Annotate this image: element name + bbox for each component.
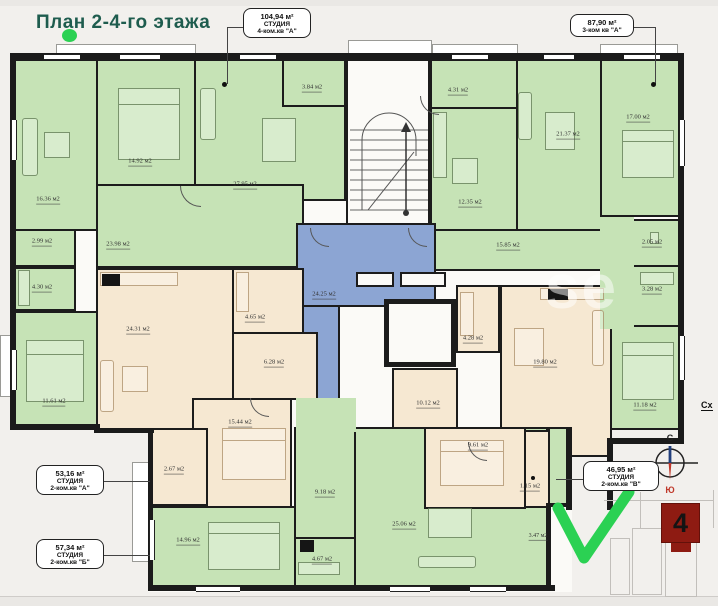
leader-dot — [651, 82, 656, 87]
corridor-filler — [296, 398, 356, 432]
compass-north-label: С — [667, 433, 674, 443]
top-strip — [0, 0, 718, 6]
callout-type: СТУДИЯ — [41, 478, 99, 485]
window — [679, 336, 685, 380]
room-4-31 — [430, 59, 520, 109]
window — [240, 54, 276, 60]
window — [470, 586, 506, 592]
room-area-label: 4.65 м2 — [245, 314, 265, 323]
bathtub-icon — [460, 292, 474, 336]
room-area-label: 27.95 м2 — [233, 181, 257, 190]
sofa-icon — [418, 556, 476, 568]
room-area-label: 4.67 м2 — [312, 556, 332, 565]
callout-area: 57,34 м² — [41, 543, 99, 552]
wall — [10, 424, 100, 430]
callout-unit: 2-ком.кв "Б" — [41, 559, 99, 566]
room-area-label: 25.06 м2 — [392, 521, 416, 530]
floorplan-screenshot: План 2-4-го этажа — [0, 0, 718, 606]
room-area-label: 24.31 м2 — [126, 326, 150, 335]
leader-line — [227, 27, 228, 84]
building-number: 4 — [673, 510, 688, 537]
sofa-icon — [22, 118, 38, 176]
room-area-label: 4.28 м2 — [463, 335, 483, 344]
room-area-label: 4.30 м2 — [32, 284, 52, 293]
bathtub-icon — [18, 270, 30, 306]
room-area-label: 21.37 м2 — [556, 131, 580, 140]
table-icon — [452, 158, 478, 184]
window — [120, 54, 160, 60]
sitemap-line — [713, 490, 714, 528]
room-area-label: 2.05 м2 — [642, 239, 662, 248]
sitemap-line — [640, 492, 641, 528]
room-area-label: 14.96 м2 — [176, 537, 200, 546]
bathtub-icon — [640, 272, 674, 285]
window — [44, 54, 80, 60]
room-area-label: 15.44 м2 — [228, 419, 252, 428]
room-area-label: 19.80 м2 — [533, 359, 557, 368]
room-area-label: 1.15 м2 — [520, 483, 540, 492]
callout-type: СТУДИЯ — [588, 474, 654, 481]
room-area-label: 17.00 м2 — [626, 114, 650, 123]
utility-shaft — [356, 272, 394, 287]
wall — [10, 53, 684, 59]
leader-dot — [222, 82, 227, 87]
window — [11, 350, 17, 390]
kitchen-counter-icon — [433, 112, 447, 178]
window — [679, 120, 685, 166]
callout-area: 53,16 м² — [41, 469, 99, 478]
leader-line — [104, 481, 150, 482]
wall — [678, 53, 684, 444]
utility-shaft — [400, 272, 446, 287]
sofa-icon — [518, 92, 532, 140]
dining-table-icon — [428, 508, 472, 538]
window — [544, 54, 574, 60]
window — [196, 586, 240, 592]
leader-line — [633, 27, 656, 28]
table-icon — [122, 366, 148, 392]
room-area-label: 12.35 м2 — [458, 199, 482, 208]
room-area-label: 23.98 м2 — [106, 241, 130, 250]
room-area-label: 24.25 м2 — [312, 291, 336, 300]
leader-line — [104, 555, 150, 556]
room-area-label: 6.28 м2 — [264, 359, 284, 368]
callout-studio-46: 46,95 м² СТУДИЯ 2-ком.кв "В" — [583, 461, 659, 491]
checkmark-icon — [545, 478, 640, 573]
side-note: Сх — [701, 400, 713, 411]
callout-type: СТУДИЯ — [248, 21, 306, 28]
bed-icon — [622, 342, 674, 400]
room-9-18-corridor — [294, 427, 356, 539]
callout-unit: 3-ком кв "А" — [575, 27, 629, 34]
callout-studio-57: 57,34 м² СТУДИЯ 2-ком.кв "Б" — [36, 539, 104, 569]
room-area-label: 16.36 м2 — [36, 196, 60, 205]
callout-studio-53: 53,16 м² СТУДИЯ 2-ком.кв "А" — [36, 465, 104, 495]
room-area-label: 9.18 м2 — [315, 489, 335, 498]
room-2-99-wc — [14, 229, 76, 267]
wall — [94, 428, 154, 433]
stove-icon — [102, 274, 120, 286]
building-marker: 4 — [661, 503, 700, 543]
compass-south-label: Ю — [665, 485, 674, 495]
leader-line — [655, 27, 656, 84]
callout-apt-87: 87,90 м² 3-ком кв "А" — [570, 14, 634, 37]
room-area-label: 3.28 м2 — [642, 286, 662, 295]
callout-studio-104: 104,94 м² СТУДИЯ 4-ком.кв "А" — [243, 8, 311, 38]
window — [390, 586, 430, 592]
room-area-label: 2.99 м2 — [32, 238, 52, 247]
building-marker-tab — [671, 543, 691, 552]
wall — [148, 428, 153, 590]
stairs-icon — [348, 60, 430, 228]
bottom-strip — [0, 596, 718, 606]
room-area-label: 15.85 м2 — [496, 242, 520, 251]
room-area-label: 10.12 м2 — [416, 400, 440, 409]
window — [452, 54, 488, 60]
room-area-label: 11.18 м2 — [633, 402, 656, 411]
window — [11, 120, 17, 160]
callout-area: 46,95 м² — [588, 465, 654, 474]
elevator-shaft — [384, 299, 456, 367]
page-title: План 2-4-го этажа — [36, 12, 210, 34]
callout-type: СТУДИЯ — [41, 552, 99, 559]
room-area-label: 9.61 м2 — [468, 442, 488, 451]
callout-area: 87,90 м² — [575, 18, 629, 27]
callout-unit: 2-ком.кв "А" — [41, 485, 99, 492]
watermark-text: se — [545, 252, 618, 323]
room-area-label: 4.31 м2 — [448, 87, 468, 96]
room-area-label: 11.61 м2 — [42, 398, 65, 407]
bed-icon — [222, 428, 286, 480]
callout-area: 104,94 м² — [248, 12, 306, 21]
room-area-label: 2.67 м2 — [164, 466, 184, 475]
bathtub-icon — [236, 272, 249, 312]
stove-icon — [300, 540, 314, 552]
sofa-icon — [200, 88, 216, 140]
bed-icon — [622, 130, 674, 178]
bed-icon — [118, 88, 180, 160]
table-icon — [44, 132, 70, 158]
callout-unit: 2-ком.кв "В" — [588, 481, 654, 488]
leader-dot — [531, 476, 535, 480]
room-area-label: 3.84 м2 — [302, 84, 322, 93]
bed-icon — [26, 340, 84, 402]
bed-icon — [208, 522, 280, 570]
green-dot-icon — [62, 29, 77, 42]
sofa-icon — [100, 360, 114, 412]
window — [149, 520, 155, 560]
dining-table-icon — [262, 118, 296, 162]
room-area-label: 14.92 м2 — [128, 158, 152, 167]
callout-unit: 4-ком.кв "А" — [248, 28, 306, 35]
